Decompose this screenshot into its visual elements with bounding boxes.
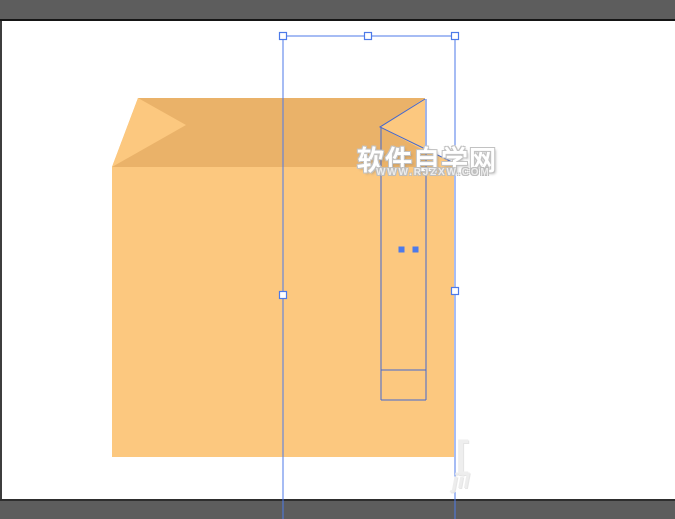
selection-handle-middle-left[interactable]	[280, 292, 287, 299]
selection-handle-top-left[interactable]	[280, 33, 287, 40]
anchor-point-left[interactable]	[399, 247, 405, 253]
artboard-canvas[interactable]	[0, 0, 675, 519]
app-window: 软件自学网 WWW.RJZXW.COM [ jìl	[0, 0, 675, 519]
anchor-point-right[interactable]	[413, 247, 419, 253]
selection-handle-middle-right[interactable]	[452, 288, 459, 295]
selection-handle-top-center[interactable]	[365, 33, 372, 40]
selection-handle-top-right[interactable]	[452, 33, 459, 40]
